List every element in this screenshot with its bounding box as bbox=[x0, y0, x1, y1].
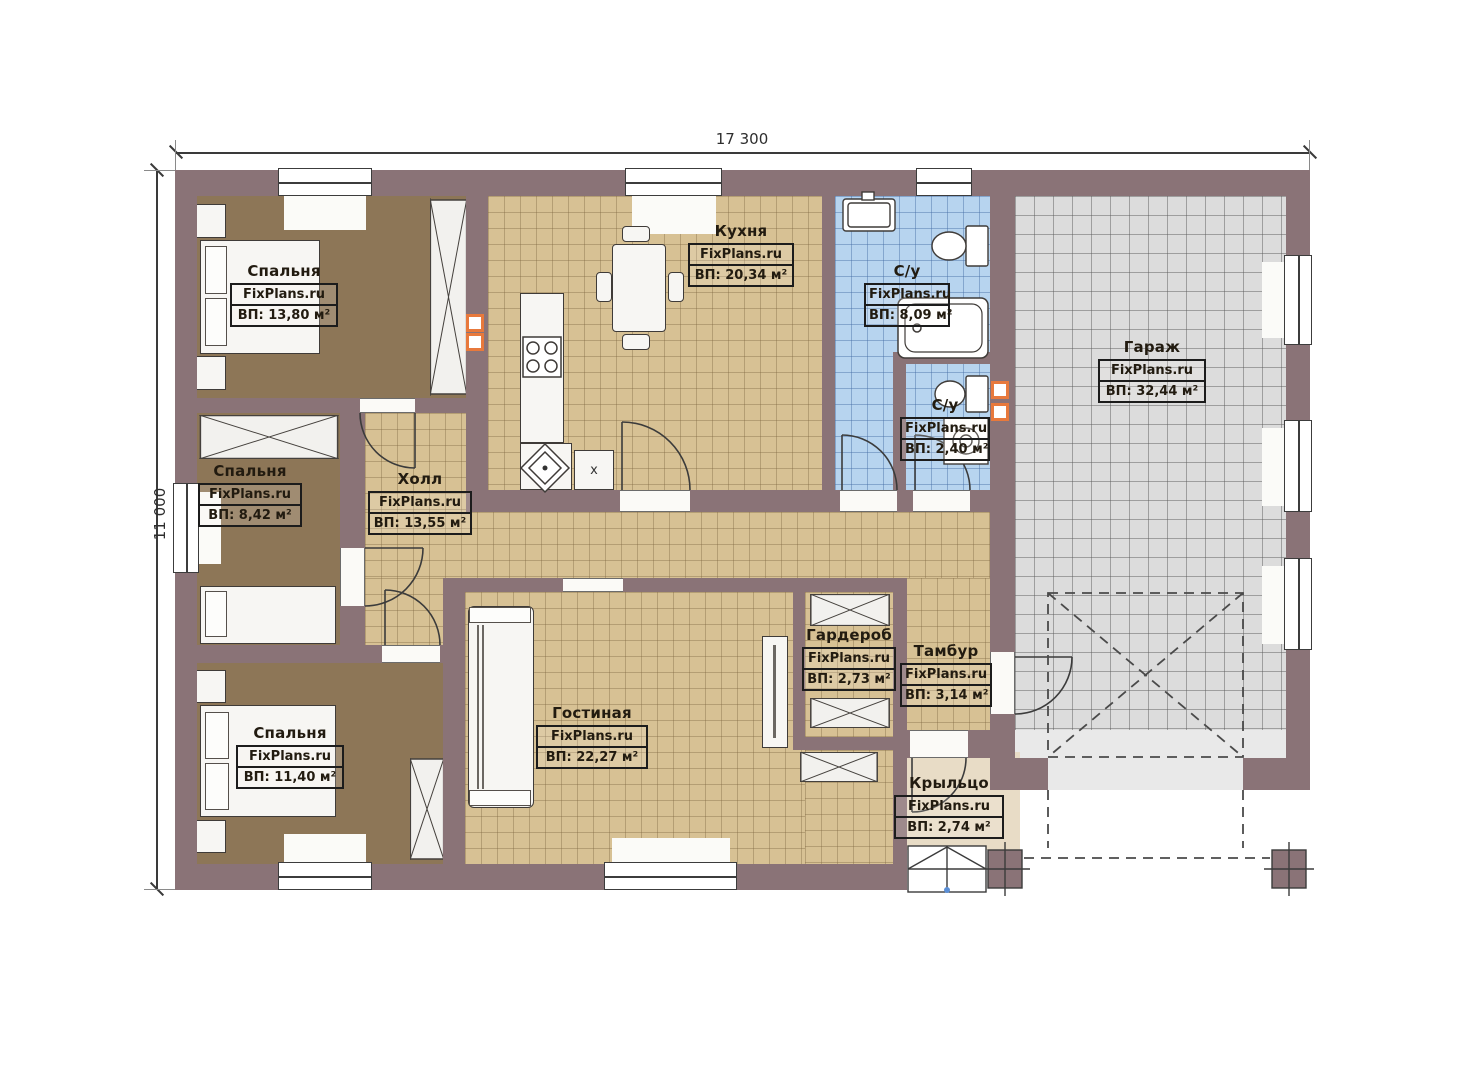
watermark: FixPlans.ru bbox=[866, 285, 948, 304]
door-threshold-bathroom2 bbox=[913, 490, 970, 512]
watermark: FixPlans.ru bbox=[1100, 361, 1204, 380]
room-info-box: FixPlans.ru ВП: 11,40 м² bbox=[236, 745, 344, 789]
closet-icon bbox=[800, 752, 878, 782]
room-label-porch: Крыльцо FixPlans.ru ВП: 2,74 м² bbox=[894, 774, 1004, 839]
wall-kitchen-west bbox=[466, 196, 488, 512]
closet-icon bbox=[810, 698, 890, 728]
tv-unit bbox=[762, 636, 788, 748]
door-threshold-garage bbox=[990, 652, 1015, 714]
room-label-living: Гостиная FixPlans.ru ВП: 22,27 м² bbox=[536, 704, 648, 769]
closet-icon bbox=[199, 415, 339, 459]
room-name: Спальня bbox=[236, 724, 344, 742]
room-info-box: FixPlans.ru ВП: 13,80 м² bbox=[230, 283, 338, 327]
room-label-bedroom2: Спальня FixPlans.ru ВП: 8,42 м² bbox=[198, 462, 302, 527]
window-reveal bbox=[284, 834, 366, 864]
dimension-extension bbox=[144, 170, 176, 171]
dining-table bbox=[612, 244, 666, 332]
floor-garage bbox=[1015, 196, 1286, 730]
room-name: С/у bbox=[900, 396, 990, 414]
room-area: ВП: 11,40 м² bbox=[238, 766, 342, 787]
chair bbox=[596, 272, 612, 302]
room-name: Кухня bbox=[688, 222, 794, 240]
wall-bedroom2-east bbox=[340, 398, 365, 663]
watermark: FixPlans.ru bbox=[370, 493, 470, 512]
vent-icon bbox=[466, 333, 484, 351]
room-name: С/у bbox=[864, 262, 950, 280]
chair bbox=[622, 334, 650, 350]
opening-hall-living bbox=[563, 578, 623, 592]
watermark: FixPlans.ru bbox=[804, 649, 894, 668]
window-bedroom3-bottom bbox=[278, 862, 372, 890]
window-living-bottom bbox=[604, 862, 737, 890]
wall-bedroom3-east bbox=[443, 578, 465, 864]
room-name: Гостиная bbox=[536, 704, 648, 722]
window-reveal bbox=[1262, 428, 1286, 506]
door-threshold-kitchen bbox=[620, 490, 690, 512]
room-label-vestibule: Тамбур FixPlans.ru ВП: 3,14 м² bbox=[900, 642, 992, 707]
room-info-box: FixPlans.ru ВП: 32,44 м² bbox=[1098, 359, 1206, 403]
nightstand bbox=[196, 204, 226, 238]
room-name: Спальня bbox=[230, 262, 338, 280]
watermark: FixPlans.ru bbox=[238, 747, 342, 766]
room-area: ВП: 2,73 м² bbox=[804, 668, 894, 689]
sofa bbox=[468, 606, 534, 808]
wall-garage-south-right bbox=[1243, 758, 1310, 790]
porch-column bbox=[980, 842, 1314, 896]
floor-plan: 17 300 11 000 bbox=[0, 0, 1473, 1080]
room-label-bedroom3: Спальня FixPlans.ru ВП: 11,40 м² bbox=[236, 724, 344, 789]
room-info-box: FixPlans.ru ВП: 8,42 м² bbox=[198, 483, 302, 527]
single-bed bbox=[200, 586, 336, 644]
room-area: ВП: 8,09 м² bbox=[866, 304, 948, 325]
door-threshold-bathroom1 bbox=[840, 490, 897, 512]
window-kitchen-top bbox=[625, 168, 722, 196]
window-garage-right-1 bbox=[1284, 255, 1312, 345]
wall-bath-internal-h bbox=[898, 352, 990, 364]
room-area: ВП: 8,42 м² bbox=[200, 504, 300, 525]
room-name: Гардероб bbox=[802, 626, 896, 644]
room-name: Спальня bbox=[198, 462, 302, 480]
room-info-box: FixPlans.ru ВП: 22,27 м² bbox=[536, 725, 648, 769]
watermark: FixPlans.ru bbox=[690, 245, 792, 264]
vent-icon bbox=[991, 403, 1009, 421]
watermark: FixPlans.ru bbox=[902, 665, 990, 684]
door-threshold-bedroom2 bbox=[340, 548, 365, 606]
chair bbox=[668, 272, 684, 302]
window-reveal bbox=[284, 196, 366, 230]
room-area: ВП: 32,44 м² bbox=[1100, 380, 1204, 401]
room-area: ВП: 3,14 м² bbox=[902, 684, 990, 705]
nightstand bbox=[196, 670, 226, 703]
room-info-box: FixPlans.ru ВП: 8,09 м² bbox=[864, 283, 950, 327]
room-name: Крыльцо bbox=[894, 774, 1004, 792]
room-name: Тамбур bbox=[900, 642, 992, 660]
watermark: FixPlans.ru bbox=[538, 727, 646, 746]
garage-door-apron bbox=[1048, 758, 1243, 790]
vent-icon bbox=[991, 381, 1009, 399]
room-name: Гараж bbox=[1098, 338, 1206, 356]
dimension-width-label: 17 300 bbox=[672, 130, 812, 148]
x-marker: x bbox=[590, 463, 598, 478]
room-area: ВП: 2,40 м² bbox=[902, 438, 988, 459]
garage-apron bbox=[1015, 730, 1286, 758]
room-label-bedroom1: Спальня FixPlans.ru ВП: 13,80 м² bbox=[230, 262, 338, 327]
closet-icon bbox=[810, 594, 890, 626]
room-area: ВП: 13,55 м² bbox=[370, 512, 470, 533]
room-area: ВП: 20,34 м² bbox=[690, 264, 792, 285]
watermark: FixPlans.ru bbox=[902, 419, 988, 438]
vent-icon bbox=[466, 314, 484, 332]
closet-icon bbox=[430, 198, 467, 396]
kitchen-counter-corner bbox=[520, 443, 572, 490]
room-label-hall: Холл FixPlans.ru ВП: 13,55 м² bbox=[368, 470, 472, 535]
watermark: FixPlans.ru bbox=[896, 797, 1002, 816]
room-info-box: FixPlans.ru ВП: 2,74 м² bbox=[894, 795, 1004, 839]
nightstand bbox=[196, 820, 226, 853]
room-label-wardrobe: Гардероб FixPlans.ru ВП: 2,73 м² bbox=[802, 626, 896, 691]
wall-wardrobe-south bbox=[793, 737, 905, 750]
window-bathroom-top bbox=[916, 168, 972, 196]
dimension-extension bbox=[144, 889, 176, 890]
wall-kitchen-bath bbox=[822, 196, 835, 492]
wall-garage-south-left bbox=[1015, 758, 1048, 790]
dimension-height-label: 11 000 bbox=[151, 444, 169, 584]
dimension-extension bbox=[175, 140, 176, 170]
room-area: ВП: 2,74 м² bbox=[896, 816, 1002, 837]
watermark: FixPlans.ru bbox=[200, 485, 300, 504]
room-label-bathroom2: С/у FixPlans.ru ВП: 2,40 м² bbox=[900, 396, 990, 461]
room-label-bathroom1: С/у FixPlans.ru ВП: 8,09 м² bbox=[864, 262, 950, 327]
nightstand bbox=[196, 356, 226, 390]
window-bedroom2-left bbox=[173, 483, 199, 573]
floor-hall-lower bbox=[365, 578, 443, 645]
window-bedroom1-top bbox=[278, 168, 372, 196]
window-reveal bbox=[612, 838, 730, 864]
door-threshold-porch bbox=[910, 730, 968, 758]
room-info-box: FixPlans.ru ВП: 2,40 м² bbox=[900, 417, 990, 461]
watermark: FixPlans.ru bbox=[232, 285, 336, 304]
room-area: ВП: 13,80 м² bbox=[232, 304, 336, 325]
room-info-box: FixPlans.ru ВП: 3,14 м² bbox=[900, 663, 992, 707]
wall-kitchen-south bbox=[466, 490, 990, 512]
door-threshold-bedroom1 bbox=[360, 398, 415, 413]
room-info-box: FixPlans.ru ВП: 13,55 м² bbox=[368, 491, 472, 535]
porch-steps bbox=[908, 846, 986, 893]
room-label-garage: Гараж FixPlans.ru ВП: 32,44 м² bbox=[1098, 338, 1206, 403]
wall-bedroom1-south bbox=[175, 398, 488, 413]
window-garage-right-2 bbox=[1284, 420, 1312, 512]
window-reveal bbox=[1262, 566, 1286, 644]
kitchen-small-table: x bbox=[574, 450, 614, 490]
room-area: ВП: 22,27 м² bbox=[538, 746, 646, 767]
window-garage-right-3 bbox=[1284, 558, 1312, 650]
room-info-box: FixPlans.ru ВП: 2,73 м² bbox=[802, 647, 896, 691]
chair bbox=[622, 226, 650, 242]
kitchen-counter bbox=[520, 293, 564, 443]
room-name: Холл bbox=[368, 470, 472, 488]
window-reveal bbox=[1262, 262, 1286, 338]
room-info-box: FixPlans.ru ВП: 20,34 м² bbox=[688, 243, 794, 287]
door-threshold-bedroom3 bbox=[382, 645, 440, 663]
room-label-kitchen: Кухня FixPlans.ru ВП: 20,34 м² bbox=[688, 222, 794, 287]
dimension-line-top bbox=[175, 152, 1310, 154]
wall-living-north bbox=[443, 578, 905, 592]
dimension-extension bbox=[1309, 140, 1310, 170]
closet-icon bbox=[410, 758, 444, 860]
